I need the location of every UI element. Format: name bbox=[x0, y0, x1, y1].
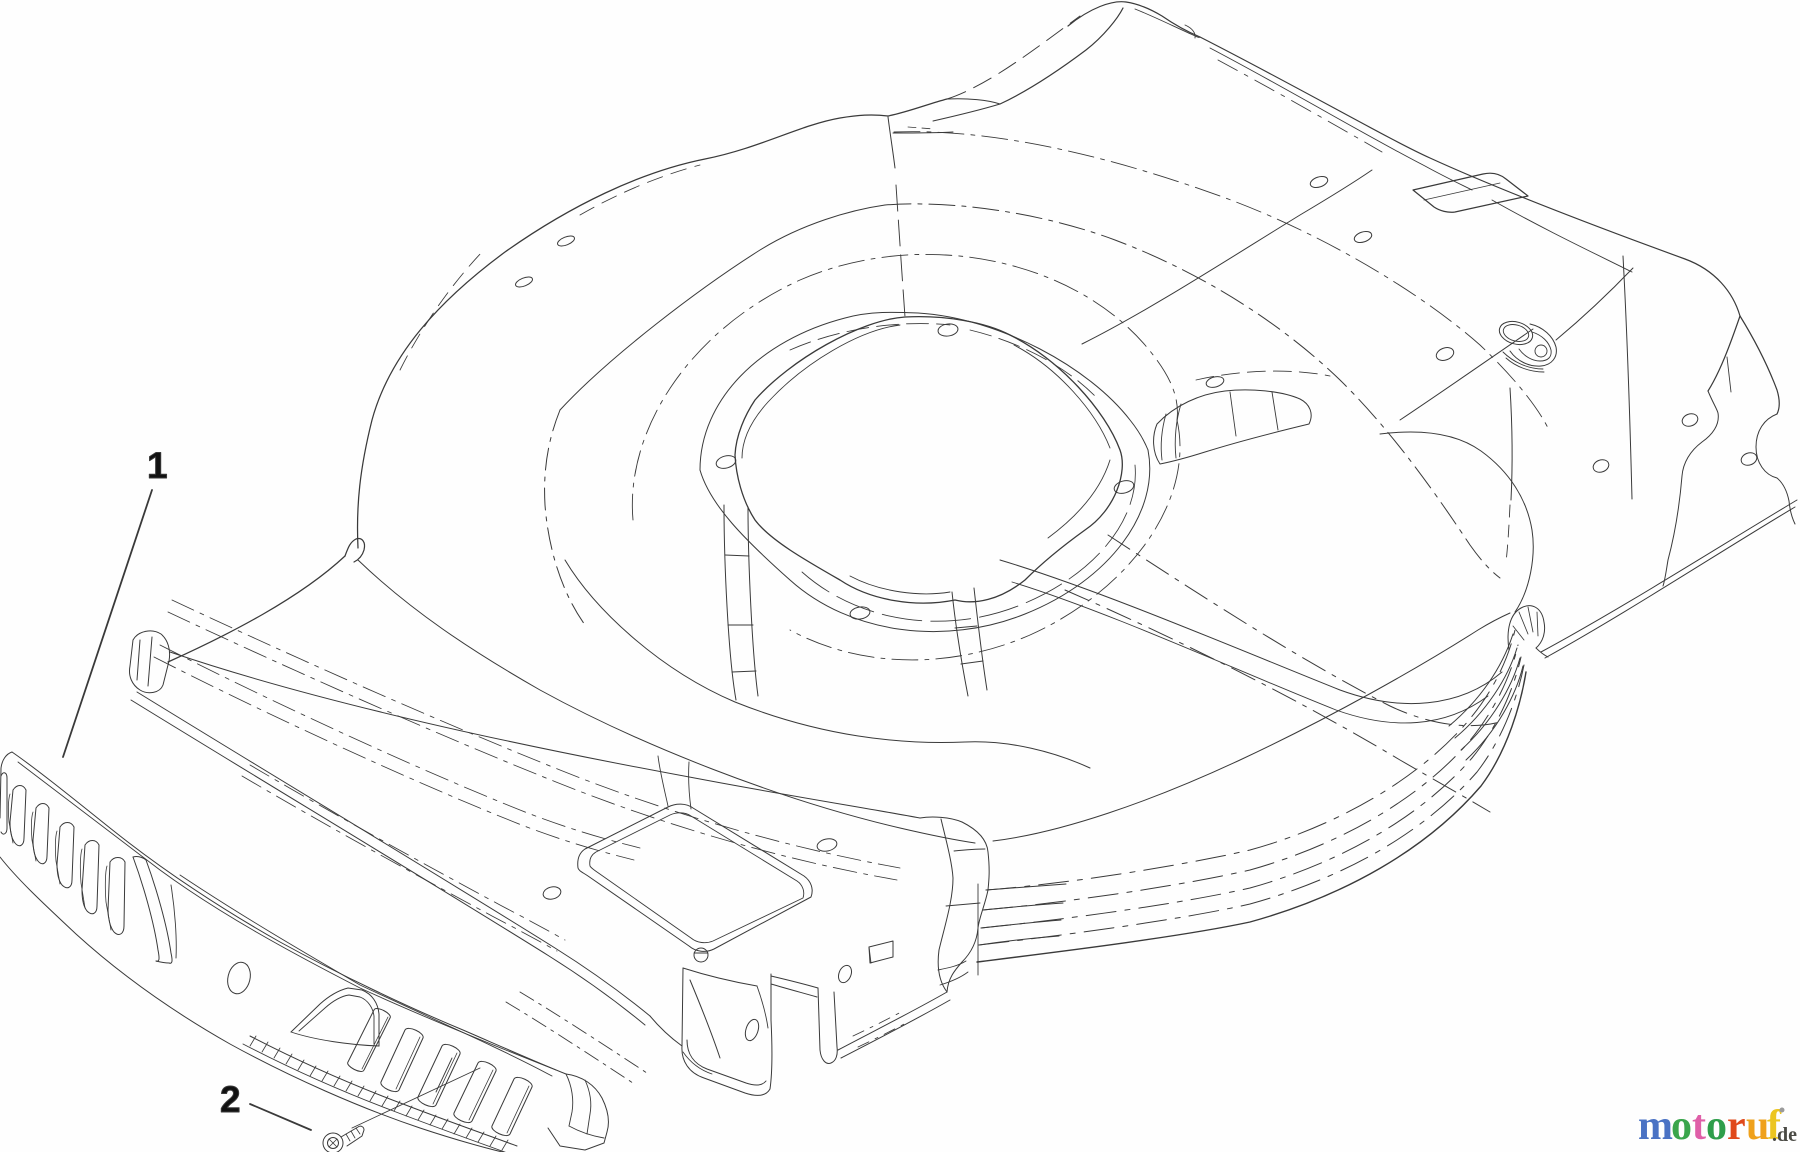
svg-text:m: m bbox=[1638, 1103, 1673, 1149]
svg-text:1: 1 bbox=[147, 445, 168, 486]
svg-text:o: o bbox=[1706, 1103, 1727, 1149]
svg-text:2: 2 bbox=[220, 1079, 241, 1120]
svg-text:u: u bbox=[1746, 1103, 1769, 1149]
svg-text:.de: .de bbox=[1772, 1124, 1797, 1146]
svg-text:t: t bbox=[1692, 1103, 1706, 1149]
svg-text:o: o bbox=[1671, 1103, 1692, 1149]
svg-text:r: r bbox=[1727, 1103, 1746, 1149]
